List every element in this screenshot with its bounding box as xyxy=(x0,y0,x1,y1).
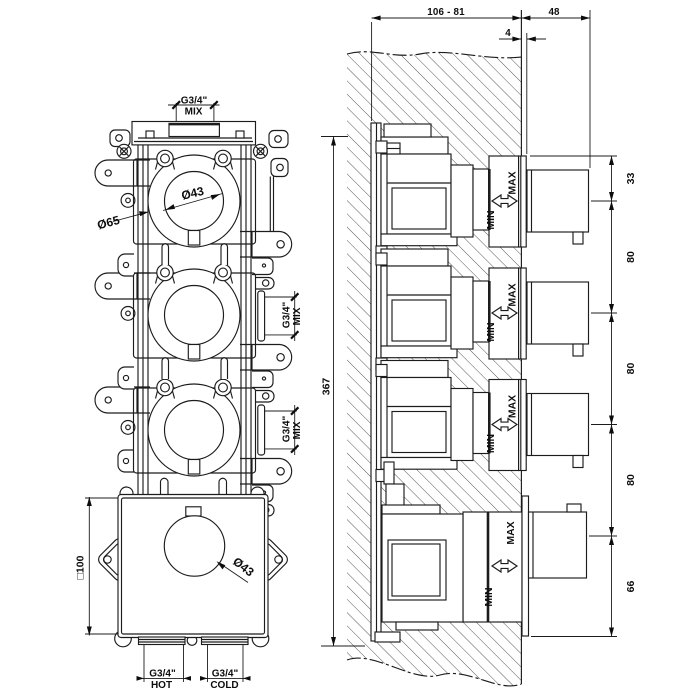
svg-text:MIX: MIX xyxy=(185,107,203,118)
svg-text:4: 4 xyxy=(505,28,511,39)
svg-text:COLD: COLD xyxy=(210,680,238,691)
svg-text:80: 80 xyxy=(625,474,637,486)
svg-text:33: 33 xyxy=(625,173,637,185)
svg-text:48: 48 xyxy=(549,7,560,18)
svg-text:MIX: MIX xyxy=(292,307,303,325)
svg-text:G3/4": G3/4" xyxy=(212,669,239,680)
svg-text:66: 66 xyxy=(625,581,637,593)
svg-text:G3/4": G3/4" xyxy=(282,302,293,329)
svg-text:G3/4": G3/4" xyxy=(181,95,208,106)
svg-text:80: 80 xyxy=(625,251,637,263)
svg-text:367: 367 xyxy=(321,378,333,396)
svg-text:MIN: MIN xyxy=(485,210,497,229)
svg-text:□100: □100 xyxy=(74,555,86,579)
svg-text:MAX: MAX xyxy=(507,171,519,194)
svg-text:MAX: MAX xyxy=(505,521,517,544)
svg-text:106 - 81: 106 - 81 xyxy=(427,7,465,18)
svg-text:MIN: MIN xyxy=(483,587,495,606)
svg-text:80: 80 xyxy=(625,363,637,375)
svg-text:HOT: HOT xyxy=(151,680,172,691)
svg-text:G3/4": G3/4" xyxy=(149,669,176,680)
